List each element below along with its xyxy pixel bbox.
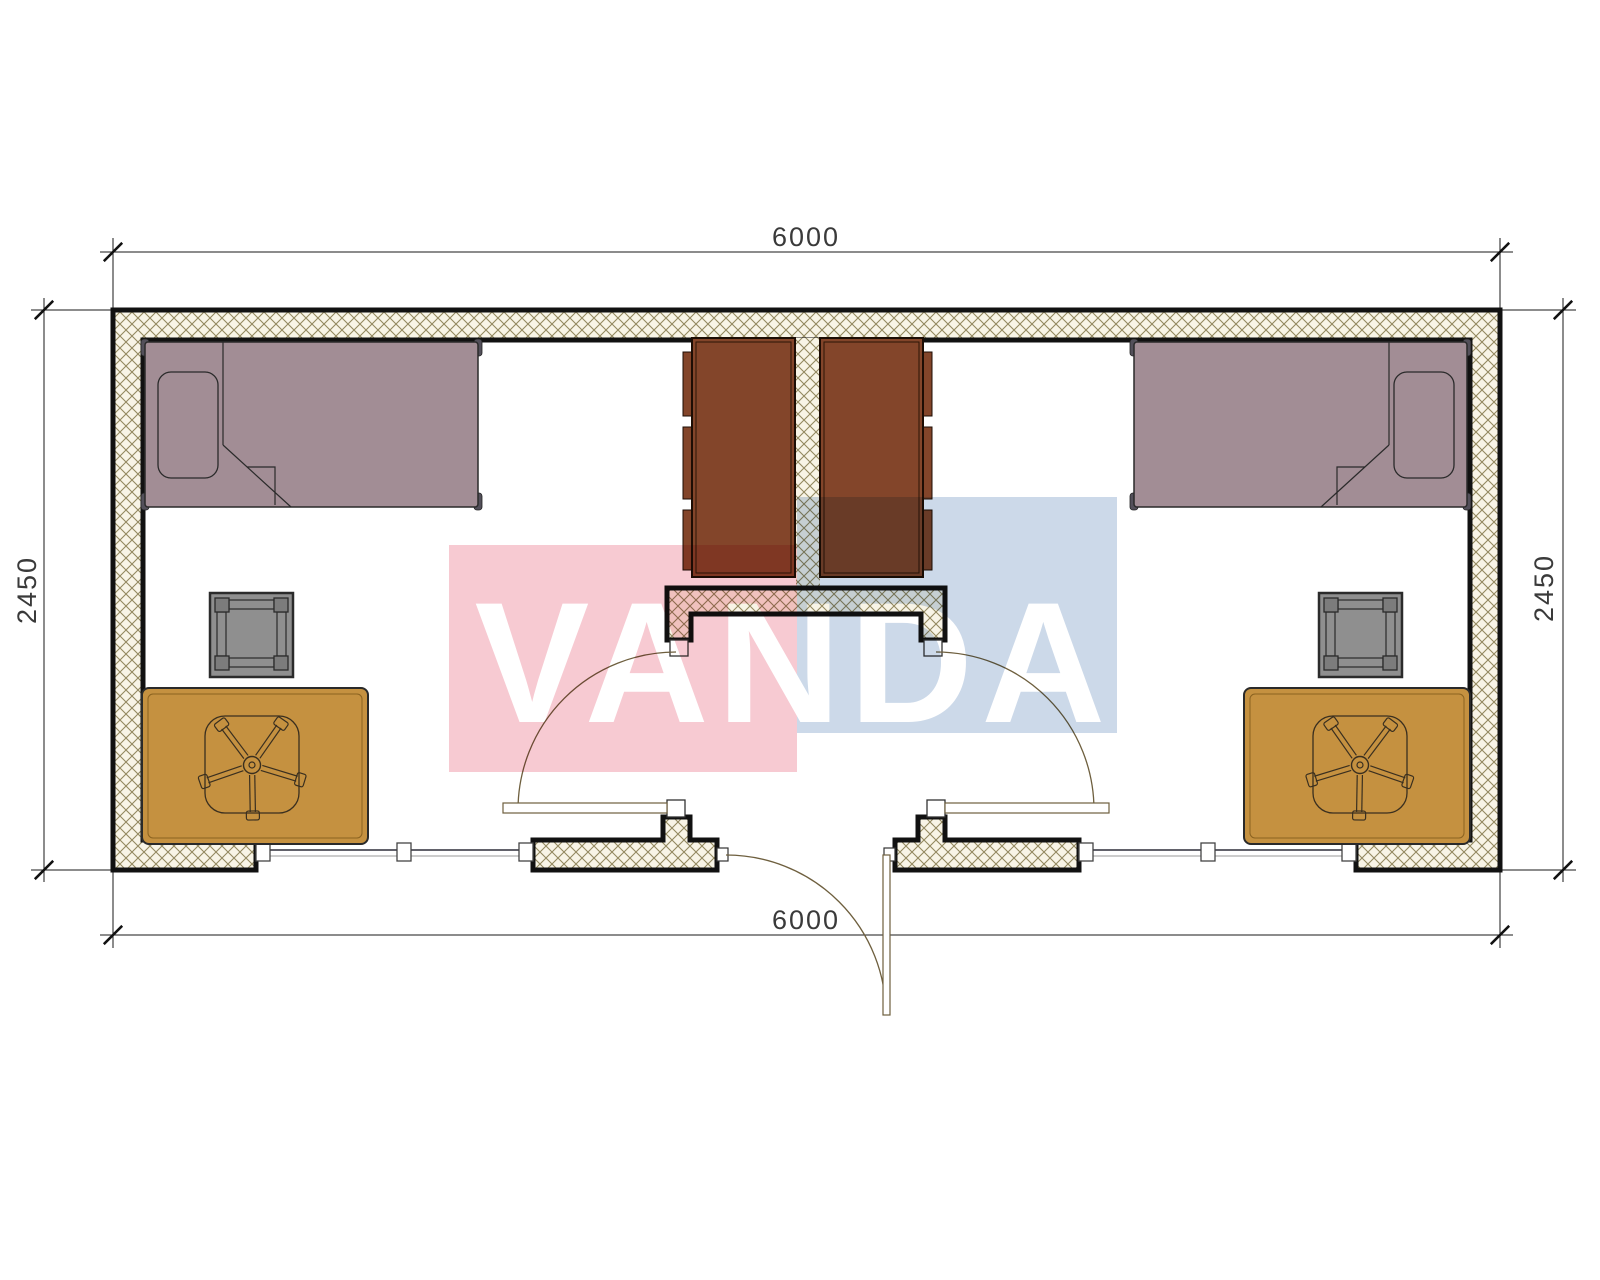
stool-right: [1319, 593, 1402, 677]
wardrobe-body: [692, 338, 795, 577]
dimension-left: 2450: [12, 298, 113, 882]
door-jamb-block: [927, 800, 945, 817]
stool-leg: [1383, 656, 1397, 670]
bed-right: [1130, 339, 1471, 510]
door-leaf: [883, 855, 890, 1015]
wardrobe-door-track: [923, 352, 932, 416]
door-leaf: [945, 803, 1109, 813]
dimension-bottom: 6000: [100, 870, 1513, 948]
window-jamb: [1079, 843, 1093, 861]
stool-leg: [215, 656, 229, 670]
desk-left: [142, 688, 368, 844]
window-left: [256, 843, 533, 861]
window-mullion: [397, 843, 411, 861]
stool-leg: [1324, 598, 1338, 612]
stool-leg: [274, 656, 288, 670]
window-mullion: [1201, 843, 1215, 861]
floor-plan-canvas: 6000 6000 2450 2450: [0, 0, 1600, 1280]
door-jamb-block: [667, 800, 685, 817]
dim-label-top: 6000: [772, 222, 840, 252]
wardrobe-left: [683, 338, 795, 577]
wardrobe-door-track: [923, 427, 932, 499]
dimension-right: 2450: [1500, 298, 1576, 882]
window-right: [1079, 843, 1356, 861]
stool-leg: [274, 598, 288, 612]
bed-left: [141, 339, 482, 510]
door-leaf: [503, 803, 667, 813]
window-jamb: [519, 843, 533, 861]
stool-left: [210, 593, 293, 677]
watermark-text: VANDA: [475, 567, 1114, 759]
stool-leg: [1324, 656, 1338, 670]
window-jamb: [1342, 843, 1356, 861]
dimension-top: 6000: [100, 222, 1513, 310]
dim-label-bottom: 6000: [772, 905, 840, 935]
entrance-wall-right: [895, 817, 1079, 870]
wardrobe-door-track: [683, 352, 692, 416]
dim-label-right: 2450: [1529, 554, 1559, 622]
window-jamb: [256, 843, 270, 861]
bed-pillow: [158, 372, 218, 478]
desk-right: [1244, 688, 1470, 844]
wardrobe-door-track: [683, 427, 692, 499]
entrance-wall-left: [533, 817, 717, 870]
dim-label-left: 2450: [12, 556, 42, 624]
stool-leg: [1383, 598, 1397, 612]
bed-pillow: [1394, 372, 1454, 478]
stool-leg: [215, 598, 229, 612]
